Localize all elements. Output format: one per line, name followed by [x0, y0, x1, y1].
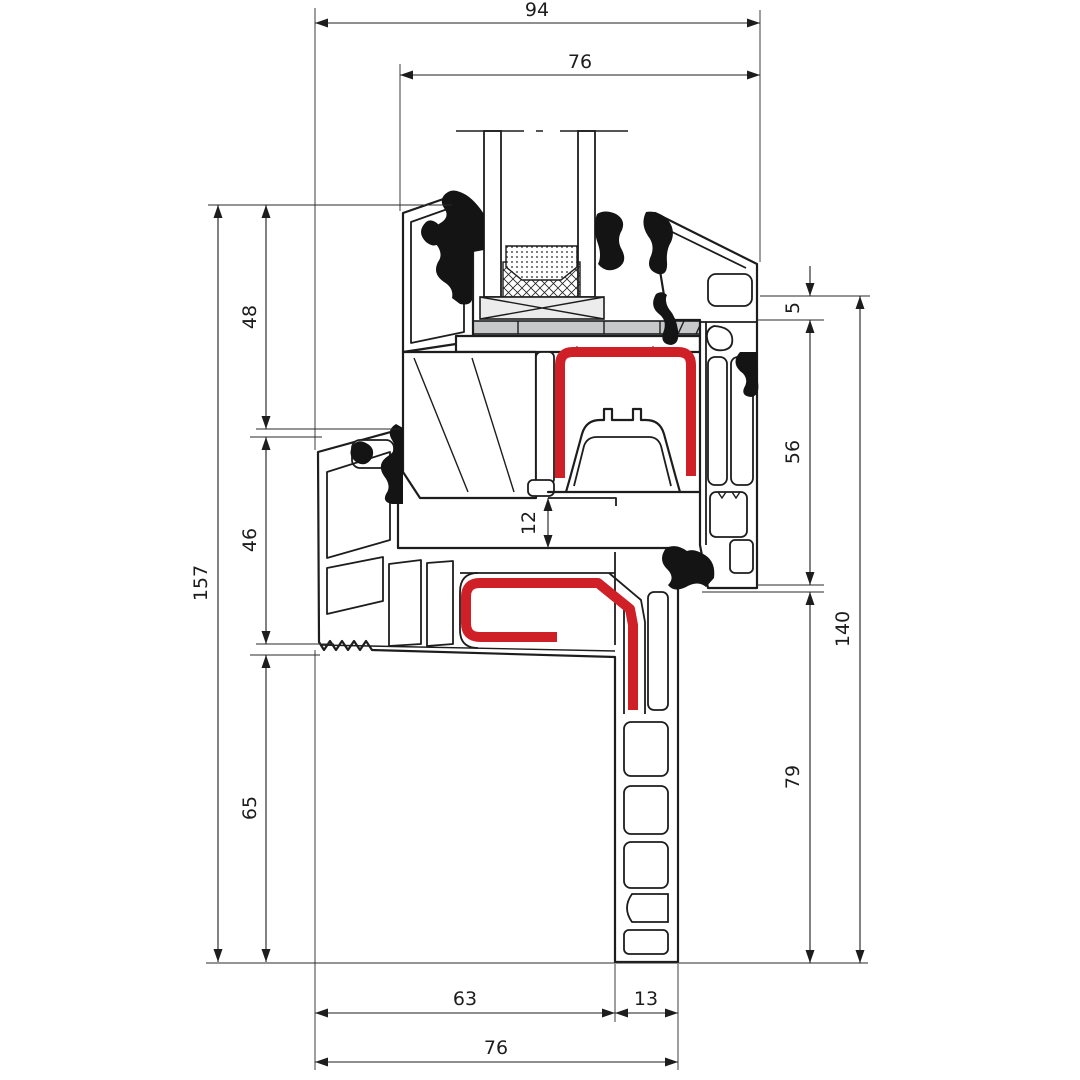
dim-label-56: 56 — [782, 440, 804, 464]
dim-label-94: 94 — [525, 0, 549, 21]
dim-label-5: 5 — [782, 302, 804, 314]
dim-bottom-left: 63 — [315, 988, 615, 1018]
dim-label-140: 140 — [832, 611, 854, 647]
dim-right-total: 140 — [832, 296, 865, 963]
dim-label-157: 157 — [190, 565, 212, 601]
dim-label-79: 79 — [782, 765, 804, 789]
frame-profile — [318, 430, 678, 962]
dim-label-46: 46 — [239, 528, 261, 552]
glass-pane-left — [484, 131, 501, 297]
dim-left-lower: 65 — [239, 655, 271, 962]
dim-label-48: 48 — [239, 305, 261, 329]
dim-bottom-right: 13 — [615, 988, 678, 1018]
dim-left-upper: 48 — [239, 205, 271, 429]
leg-chamber-1 — [624, 722, 668, 776]
leg-chamber-2 — [624, 786, 668, 834]
dim-label-76-bottom: 76 — [484, 1037, 508, 1059]
sash-bottom-edge — [548, 498, 616, 506]
jamb-chamber-c — [710, 492, 747, 537]
leg-chamber-tall — [648, 592, 668, 710]
jamb-chamber-top — [708, 274, 752, 306]
jamb-chamber-a — [708, 357, 727, 485]
rebate-foot-left — [528, 480, 554, 496]
dim-left-middle: 46 — [239, 437, 271, 644]
dim-label-12: 12 — [518, 511, 540, 535]
dim-label-65: 65 — [239, 796, 261, 820]
rebate-wall-left — [536, 352, 554, 484]
dim-label-63: 63 — [453, 988, 477, 1010]
leg-chamber-4 — [627, 894, 668, 922]
dim-bottom-total: 76 — [315, 1037, 678, 1067]
dim-label-76-top: 76 — [568, 51, 592, 73]
leg-chamber-3 — [624, 842, 668, 888]
extension-lines — [206, 8, 870, 1070]
hardware-hump — [548, 409, 700, 492]
dim-left-total: 157 — [190, 205, 223, 962]
dimension-system: 94 76 157 48 46 65 — [190, 0, 870, 1070]
sash-lower-left — [403, 352, 536, 498]
jamb-chamber-d — [730, 540, 753, 573]
dim-top-inner: 76 — [400, 51, 760, 80]
dim-right-lower: 79 — [782, 592, 815, 963]
glazing-packer — [480, 297, 604, 319]
dim-center-gap: 12 — [518, 498, 553, 548]
frame-right-jamb — [655, 213, 757, 588]
dim-right-upper: 56 — [782, 320, 815, 585]
dim-top-total: 94 — [315, 0, 760, 28]
leg-chamber-5 — [624, 930, 668, 954]
technical-drawing: 94 76 157 48 46 65 — [0, 0, 1080, 1080]
dim-label-13: 13 — [634, 988, 658, 1010]
drawing-canvas: 94 76 157 48 46 65 — [0, 0, 1080, 1080]
glass-gasket-right-a — [595, 212, 625, 271]
edge-spacer — [506, 246, 577, 280]
